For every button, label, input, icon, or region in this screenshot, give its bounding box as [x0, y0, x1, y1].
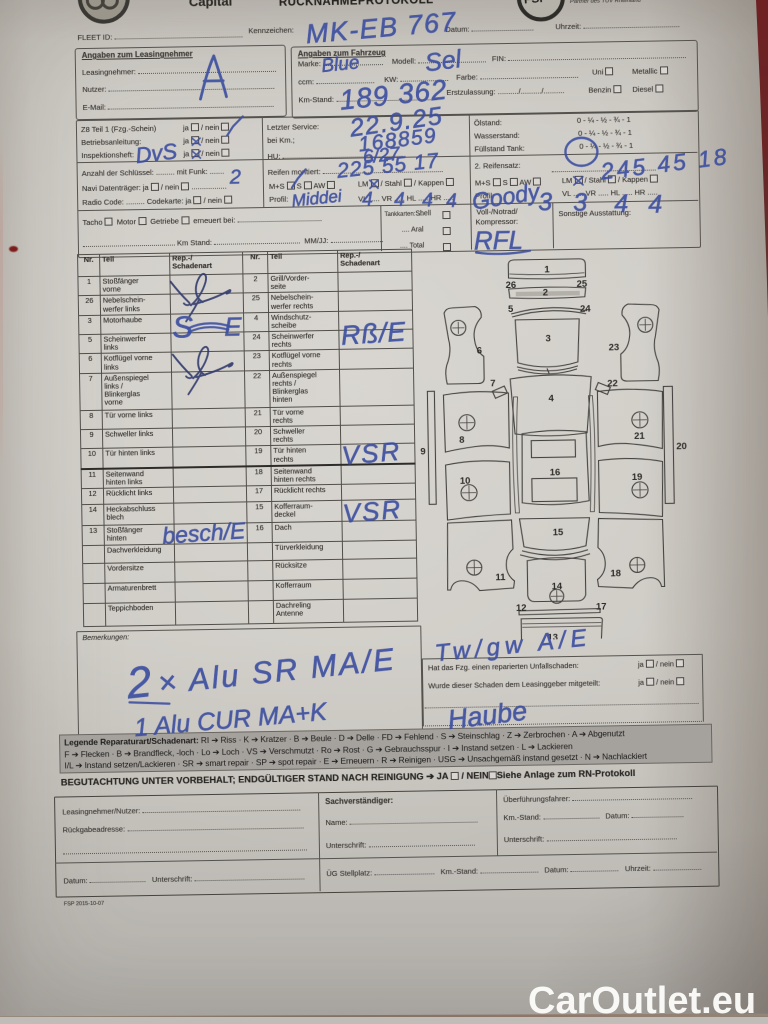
svg-text:2: 2: [123, 657, 153, 708]
svg-text:4: 4: [394, 190, 405, 211]
svg-text:besch/E: besch/E: [161, 517, 246, 549]
svg-text:Goody: Goody: [470, 178, 542, 214]
svg-text:3: 3: [538, 188, 552, 216]
svg-text:245 45 18: 245 45 18: [598, 143, 731, 185]
svg-text:DvS: DvS: [134, 138, 179, 168]
svg-text:× Alu SR MA/E: × Alu SR MA/E: [156, 641, 397, 701]
svg-text:Rß/E: Rß/E: [340, 316, 407, 350]
svg-text:4: 4: [648, 190, 662, 218]
svg-text:Blue: Blue: [320, 52, 360, 77]
svg-text:MK-EB 767: MK-EB 767: [305, 6, 459, 49]
svg-text:2: 2: [229, 166, 241, 188]
svg-text:4: 4: [614, 190, 628, 218]
svg-text:Middei: Middei: [291, 186, 344, 210]
svg-text:VSR: VSR: [340, 436, 402, 471]
svg-text:225 55 17: 225 55 17: [335, 149, 441, 183]
svg-text:4: 4: [446, 191, 457, 212]
svg-text:Sel: Sel: [423, 45, 464, 77]
svg-text:VSR: VSR: [341, 494, 403, 529]
svg-text:4: 4: [362, 189, 373, 210]
svg-text:RFL: RFL: [474, 225, 524, 256]
svg-text:3: 3: [573, 189, 587, 217]
svg-text:Tw/gw A/E: Tw/gw A/E: [434, 624, 593, 667]
svg-text:Haube: Haube: [446, 696, 529, 735]
svg-text:4: 4: [422, 190, 433, 211]
